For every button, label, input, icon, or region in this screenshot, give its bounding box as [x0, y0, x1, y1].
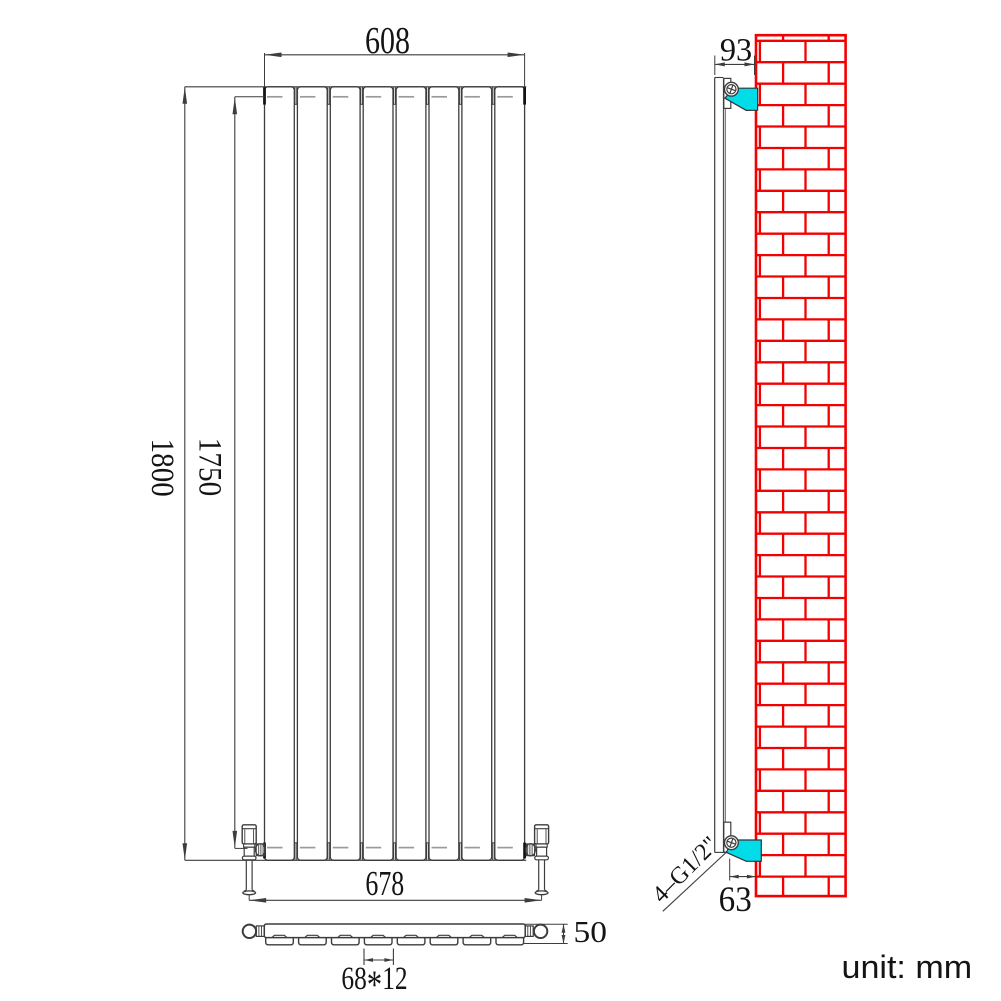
svg-text:678: 678 [365, 864, 404, 903]
svg-text:unit: mm: unit: mm [842, 950, 973, 986]
svg-text:1800: 1800 [144, 439, 181, 497]
svg-text:63: 63 [719, 880, 752, 920]
svg-text:1750: 1750 [192, 438, 229, 496]
svg-text:93: 93 [720, 32, 752, 68]
svg-text:4–G1/2": 4–G1/2" [648, 832, 724, 908]
svg-text:608: 608 [365, 20, 410, 62]
svg-text:50: 50 [573, 914, 606, 949]
svg-text:68*12: 68*12 [341, 961, 407, 1001]
